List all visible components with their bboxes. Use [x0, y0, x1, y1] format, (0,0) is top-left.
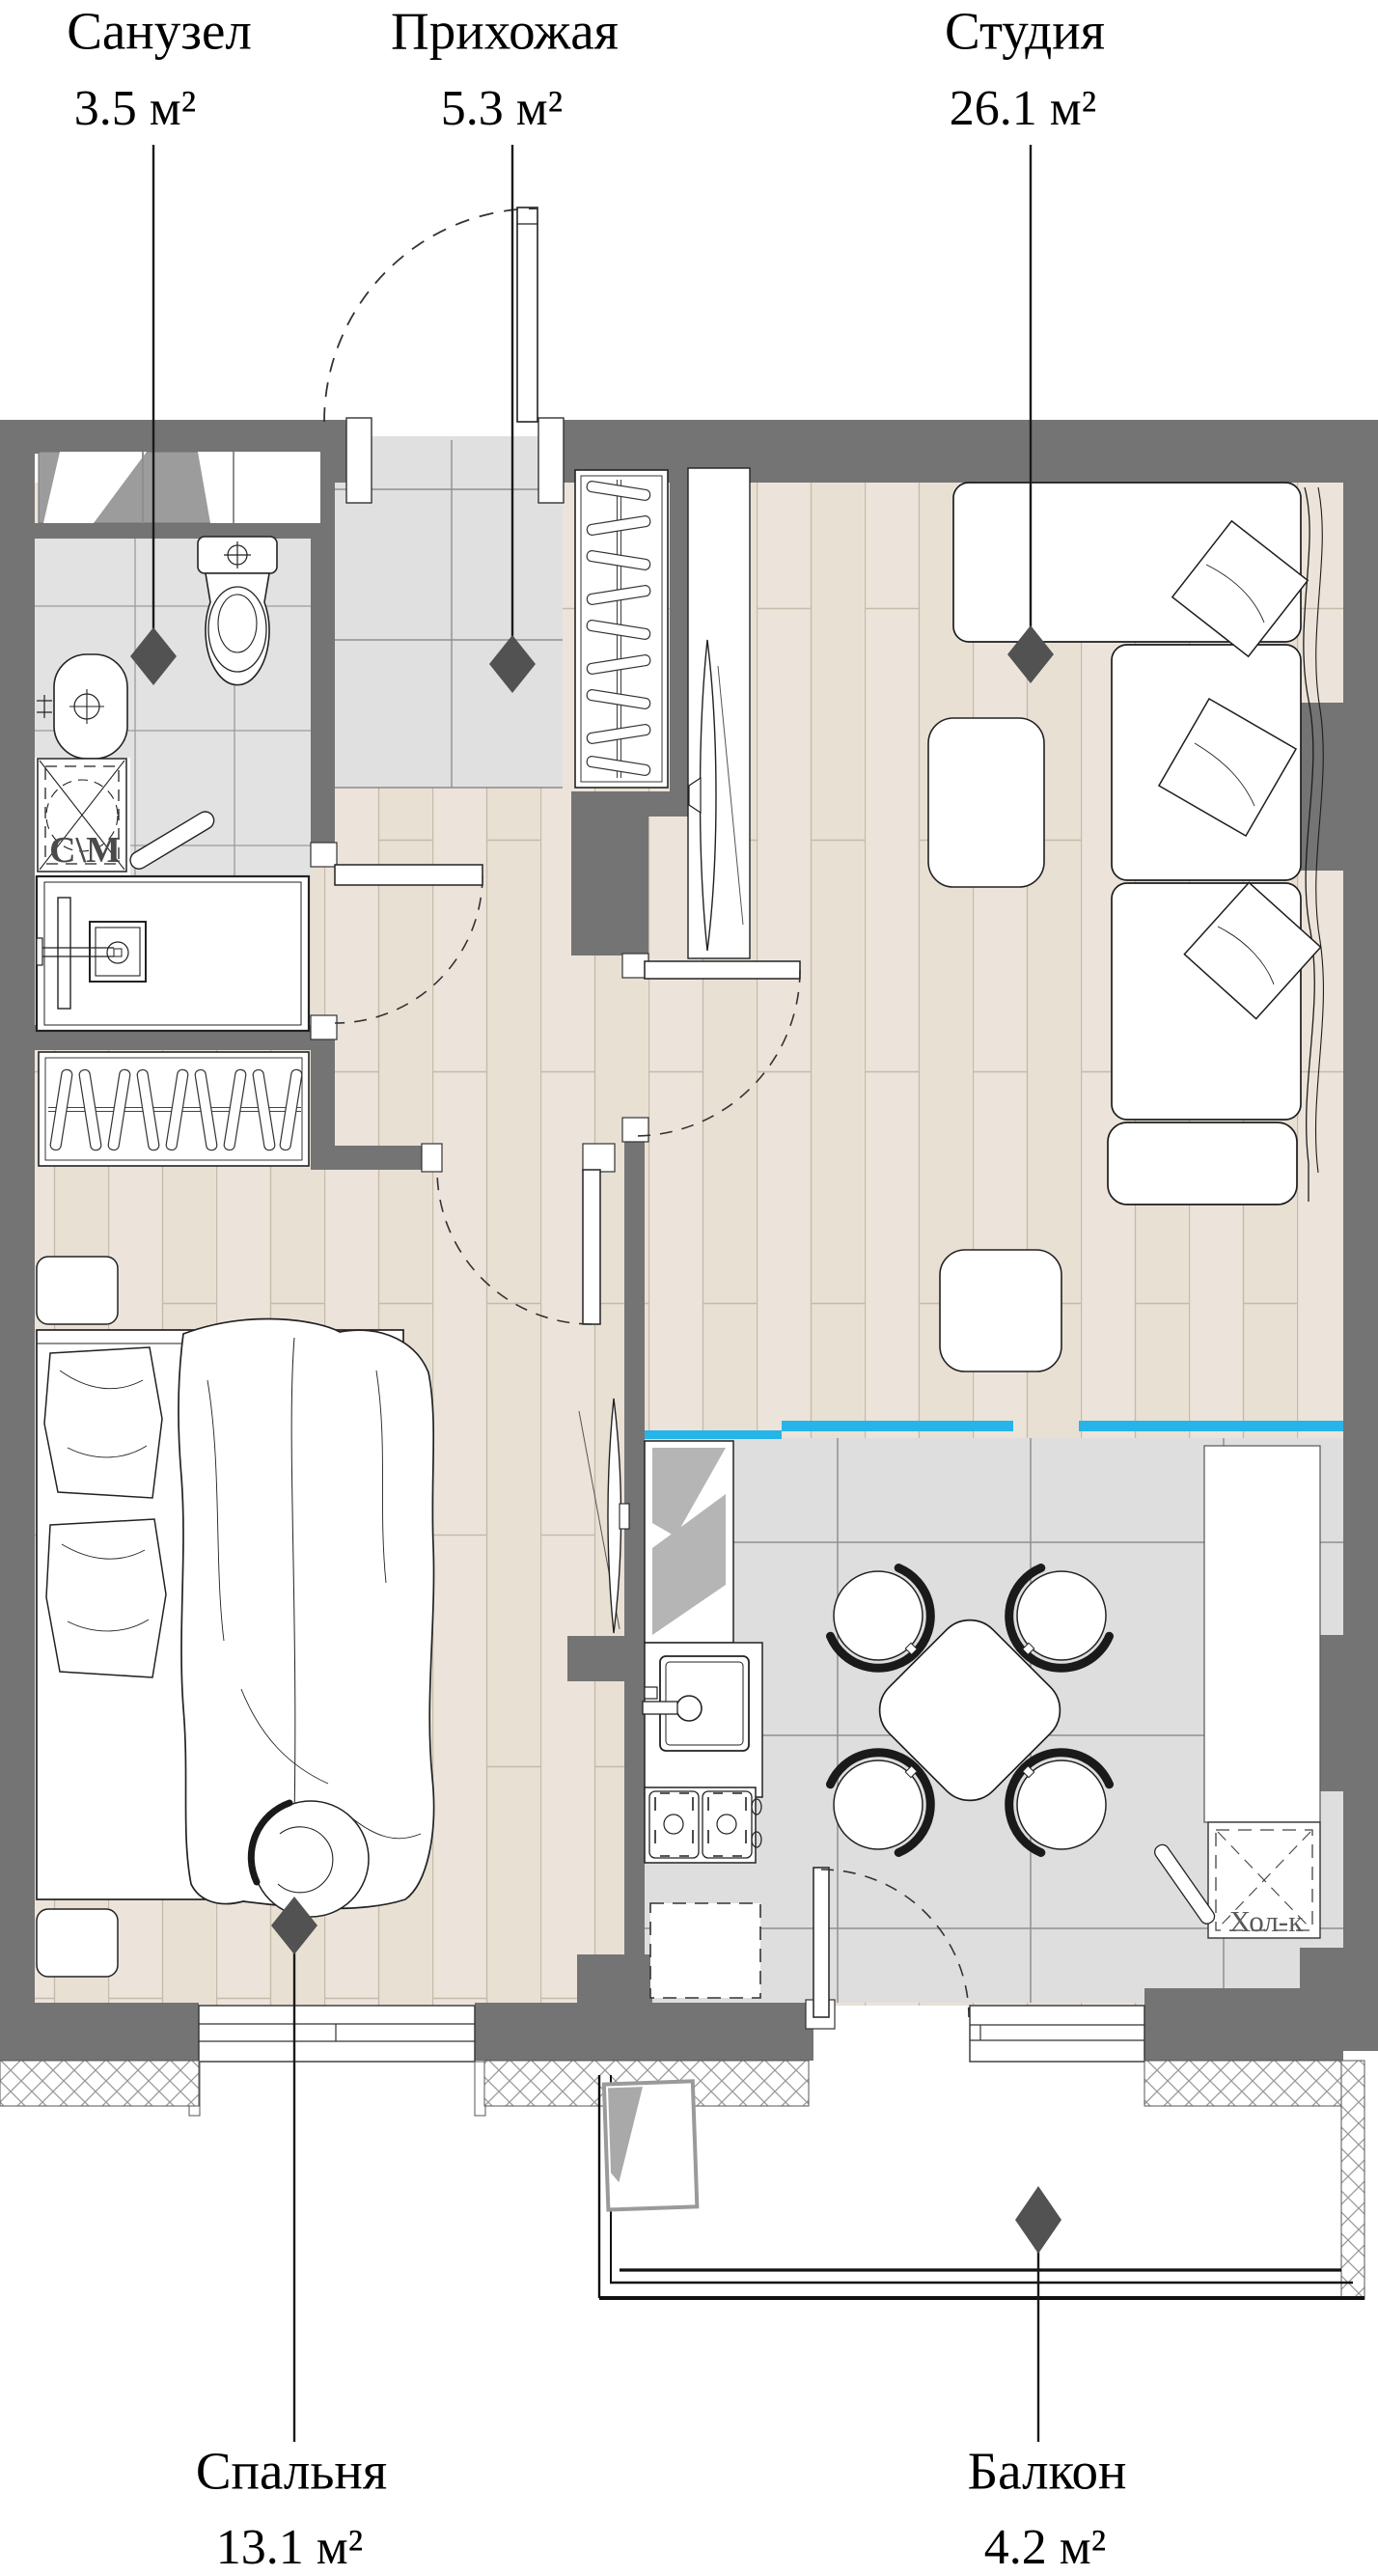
- under-counter-appliance: [650, 1903, 760, 1998]
- room-area: 5.3 м²: [441, 84, 564, 134]
- wall-studio-divider: [624, 1142, 645, 1679]
- coffee-table: [928, 718, 1044, 887]
- label-balkon-area: 4.2 м²: [984, 2523, 1107, 2573]
- label-spalnya: Спальня: [196, 2445, 387, 2498]
- wall-block: [571, 791, 648, 956]
- kitchen-counter-right: [1204, 1446, 1320, 1822]
- balcony: [599, 2075, 1364, 2298]
- kitchen-window: [970, 2006, 1144, 2062]
- kitchen-sink-unit: [643, 1643, 762, 1797]
- nightstand: [37, 1909, 118, 1977]
- floor-plan-drawing: Хол-к: [0, 0, 1378, 2576]
- bedroom-window: [189, 2006, 485, 2116]
- room-area: 3.5 м²: [74, 84, 197, 134]
- floor-plan-page: Хол-к: [0, 0, 1378, 2576]
- armchair: [251, 1801, 369, 1917]
- wall-closet-strip: [670, 466, 688, 817]
- window-sill: [0, 523, 335, 539]
- wall-bath-right-low: [311, 1033, 335, 1170]
- refrigerator: Хол-к: [1208, 1822, 1320, 1938]
- tall-cabinet: [645, 1441, 733, 1643]
- nightstand: [37, 1257, 118, 1324]
- stove: [645, 1787, 761, 1863]
- room-area: 13.1 м²: [216, 2523, 364, 2573]
- wall-right: [1343, 420, 1378, 2051]
- room-name: Балкон: [968, 2445, 1127, 2498]
- balcony-railing: [599, 2075, 1364, 2298]
- label-spalnya-area: 13.1 м²: [216, 2523, 364, 2573]
- shower: [37, 876, 309, 1031]
- marker-balkon: [1015, 2186, 1061, 2254]
- room-name: Санузел: [67, 5, 252, 58]
- wall-top-bath: [0, 420, 335, 454]
- wall-stub: [567, 1636, 645, 1681]
- wall-bottom-corner: [1300, 1948, 1378, 2029]
- ottoman: [940, 1250, 1061, 1371]
- label-sanuzel-area: 3.5 м²: [74, 84, 197, 134]
- label-prihozhaya-area: 5.3 м²: [441, 84, 564, 134]
- room-name: Прихожая: [391, 5, 619, 58]
- room-area: 26.1 м²: [950, 84, 1097, 134]
- bathroom-window: [39, 452, 320, 523]
- tv-console: [688, 468, 750, 958]
- ac-unit: [604, 2081, 697, 2209]
- room-name: Спальня: [196, 2445, 387, 2498]
- label-studia: Студия: [945, 5, 1105, 58]
- washing-machine-label: С\М: [49, 830, 121, 871]
- label-balkon: Балкон: [968, 2445, 1127, 2498]
- bedroom-wardrobe: [39, 1052, 309, 1166]
- room-name: Студия: [945, 5, 1105, 58]
- wall-bottom-1: [0, 2003, 199, 2061]
- label-sanuzel: Санузел: [67, 5, 252, 58]
- wall-left: [0, 420, 35, 2061]
- wall-bottom-chunk: [577, 1954, 652, 2061]
- bed: [37, 1319, 434, 1909]
- label-studia-area: 26.1 м²: [950, 84, 1097, 134]
- hall-wardrobe: [575, 470, 668, 788]
- refrigerator-label: Хол-к: [1229, 1904, 1304, 1938]
- label-prihozhaya: Прихожая: [391, 5, 619, 58]
- room-area: 4.2 м²: [984, 2523, 1107, 2573]
